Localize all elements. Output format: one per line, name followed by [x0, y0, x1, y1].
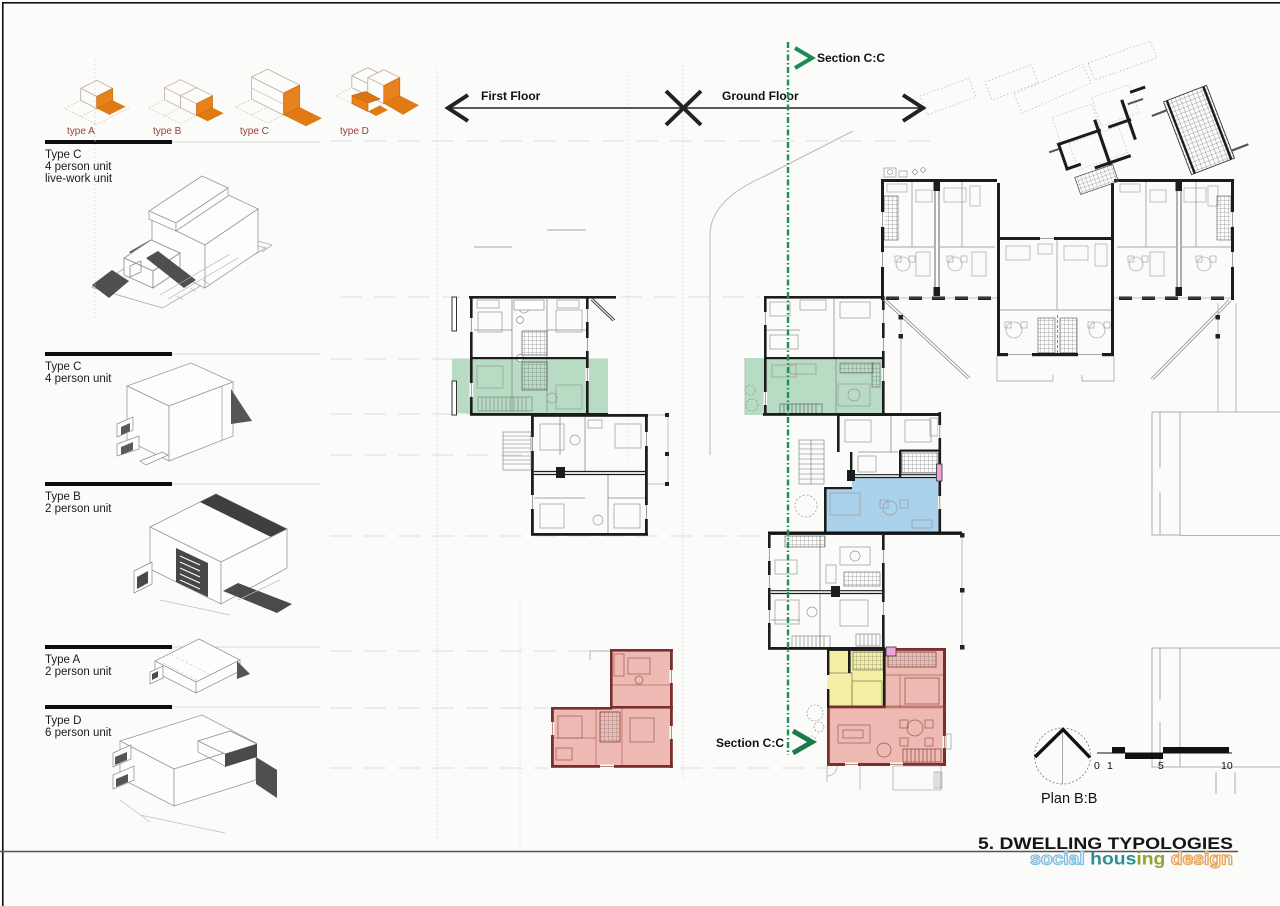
- svg-text:social housing design: social housing design: [1030, 849, 1233, 869]
- svg-text:Plan B:B: Plan B:B: [1041, 791, 1097, 807]
- svg-text:Type D: Type D: [45, 715, 81, 727]
- svg-text:type A: type A: [67, 126, 95, 137]
- svg-text:1: 1: [1107, 760, 1113, 772]
- svg-text:2 person unit: 2 person unit: [45, 666, 112, 678]
- svg-text:Type C: Type C: [45, 149, 81, 161]
- svg-text:5: 5: [1158, 760, 1164, 772]
- svg-text:4 person unit: 4 person unit: [45, 373, 112, 385]
- svg-text:Type C: Type C: [45, 361, 81, 373]
- svg-text:Section C:C: Section C:C: [817, 51, 885, 65]
- svg-text:live-work unit: live-work unit: [45, 173, 113, 185]
- svg-text:Type B: Type B: [45, 491, 81, 503]
- svg-text:2 person unit: 2 person unit: [45, 503, 112, 515]
- svg-text:4 person unit: 4 person unit: [45, 161, 112, 173]
- svg-text:type C: type C: [240, 126, 269, 137]
- svg-text:type B: type B: [153, 126, 182, 137]
- svg-text:6 person unit: 6 person unit: [45, 727, 112, 739]
- svg-text:Type A: Type A: [45, 654, 80, 666]
- svg-text:type D: type D: [340, 126, 369, 137]
- svg-text:Section C:C: Section C:C: [716, 736, 784, 750]
- svg-text:10: 10: [1221, 760, 1233, 772]
- svg-text:0: 0: [1094, 760, 1100, 772]
- svg-text:First Floor: First Floor: [481, 89, 541, 103]
